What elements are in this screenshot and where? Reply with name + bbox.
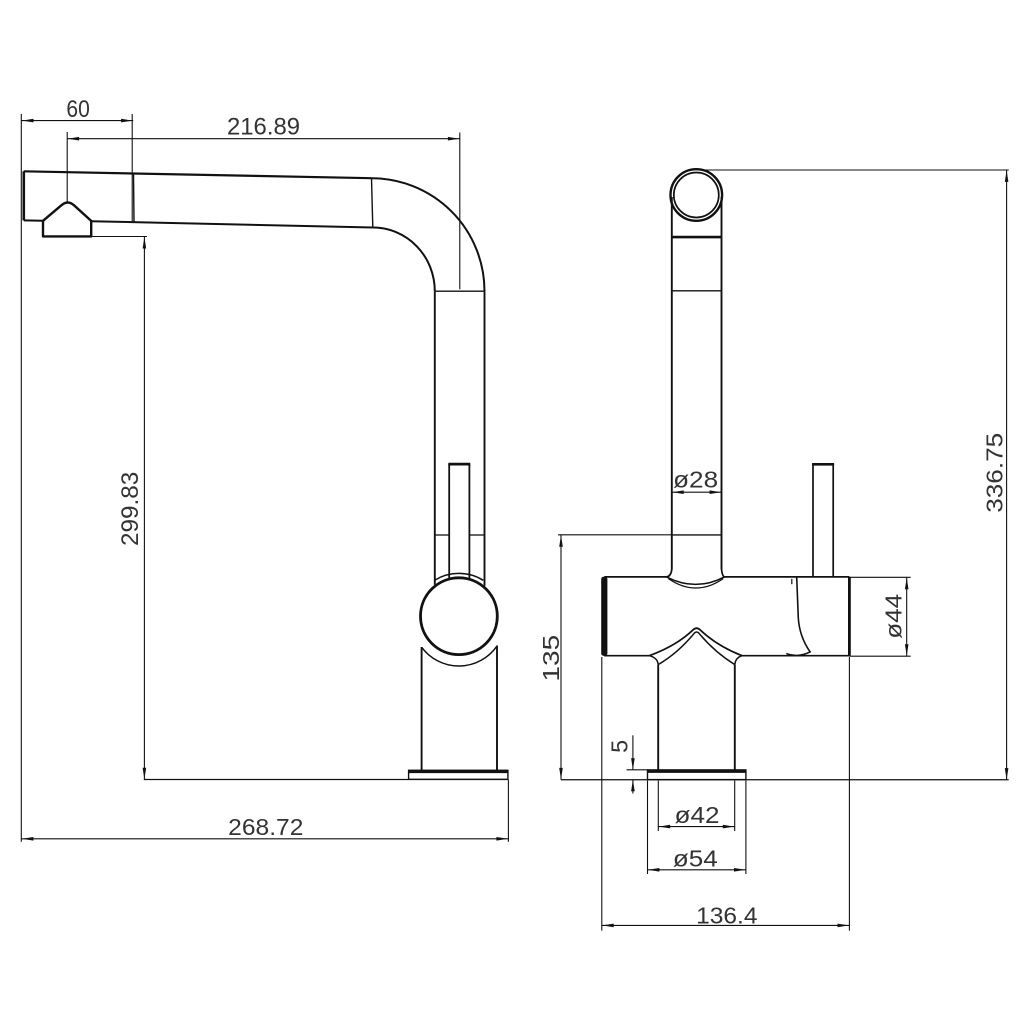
svg-text:ø28: ø28 — [673, 467, 718, 493]
svg-text:ø44: ø44 — [881, 594, 907, 639]
svg-text:ø42: ø42 — [675, 802, 720, 828]
svg-text:135: 135 — [538, 635, 564, 682]
svg-text:216.89: 216.89 — [227, 114, 300, 141]
svg-text:336.75: 336.75 — [982, 433, 1008, 513]
svg-text:299.83: 299.83 — [117, 472, 144, 546]
svg-text:268.72: 268.72 — [228, 814, 303, 840]
svg-text:5: 5 — [606, 740, 632, 753]
svg-text:ø54: ø54 — [673, 845, 718, 871]
svg-text:136.4: 136.4 — [696, 902, 758, 928]
svg-text:60: 60 — [66, 96, 89, 123]
